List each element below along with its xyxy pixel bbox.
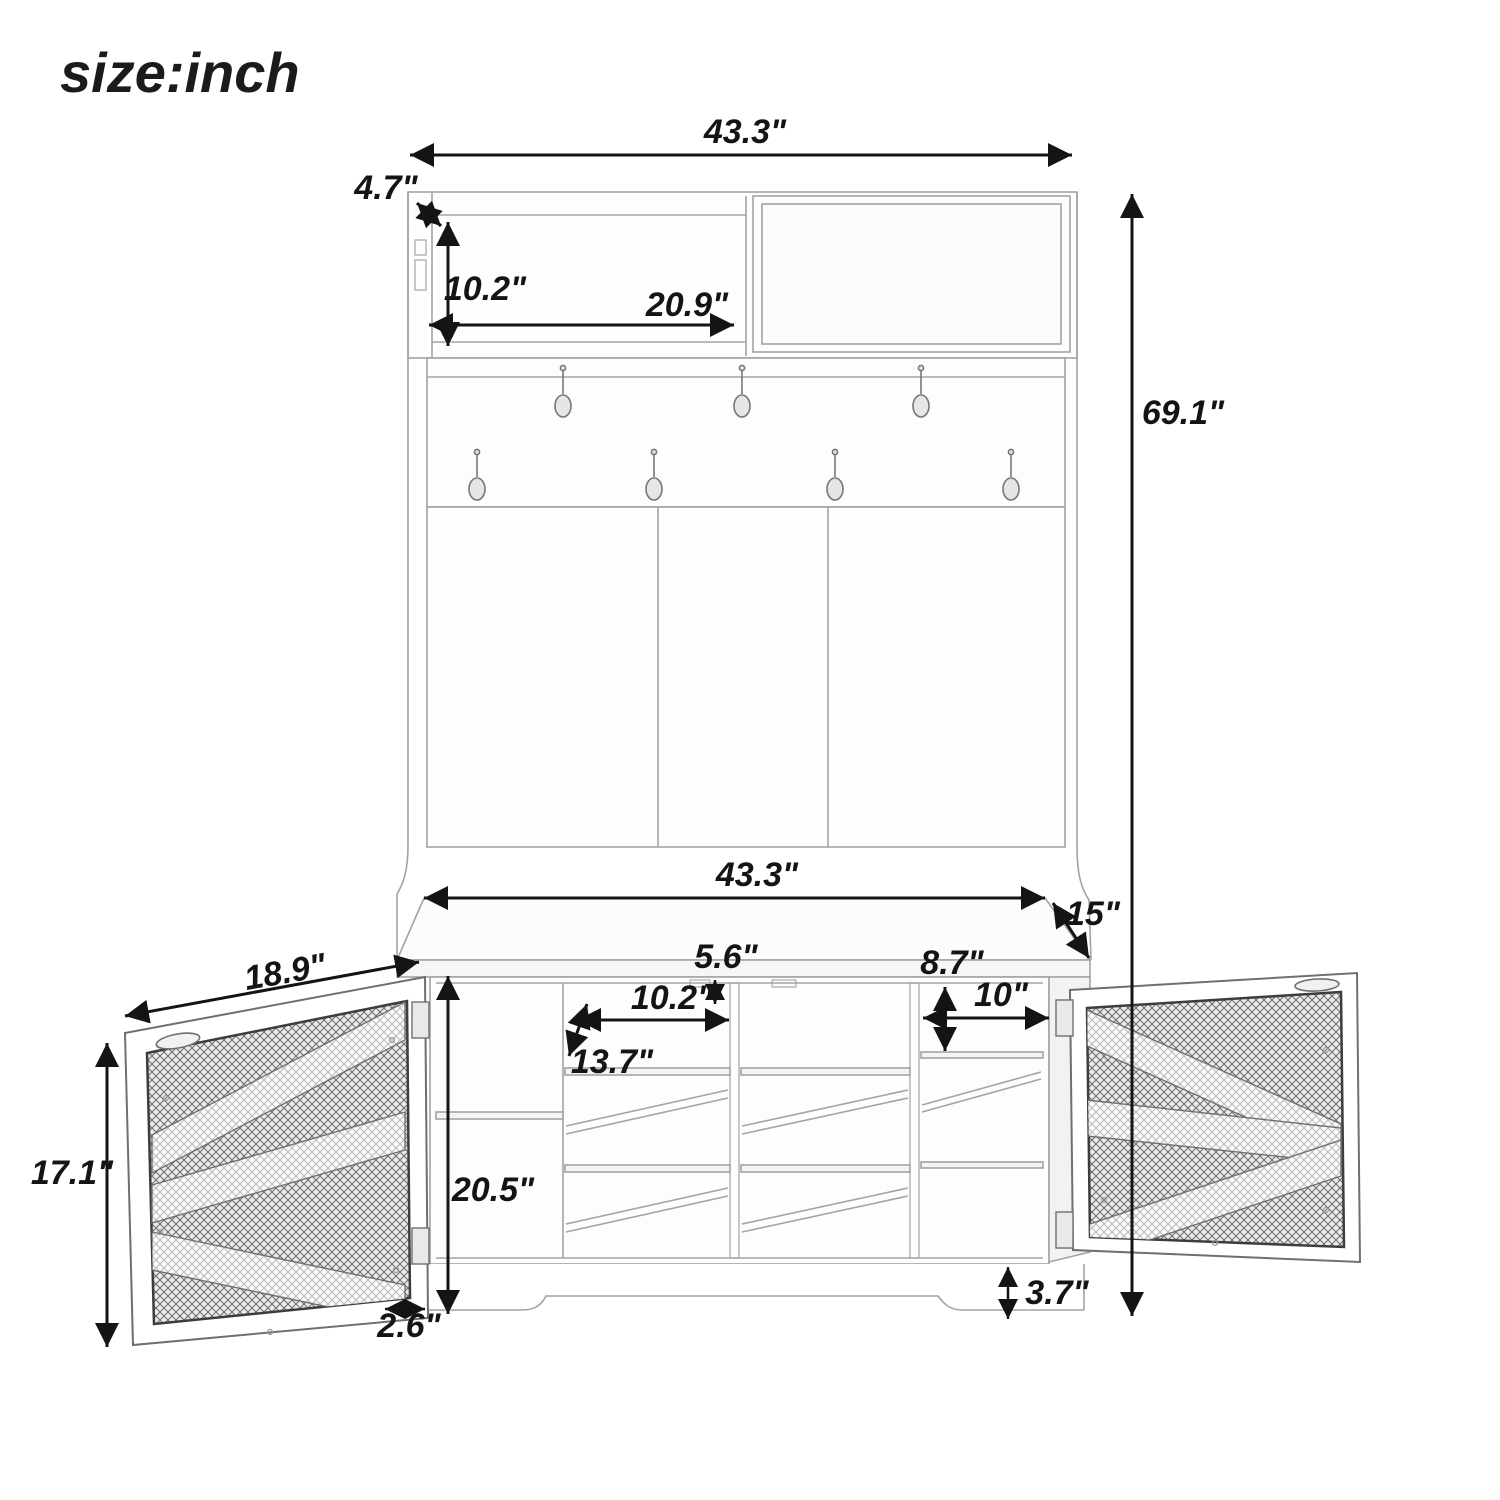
shelf	[565, 1165, 730, 1172]
dim-bench-width-label: 43.3"	[715, 856, 799, 894]
dim-door-height-label: 17.1"	[31, 1154, 114, 1192]
dim-base-height-label: 3.7"	[1025, 1274, 1089, 1312]
shelf	[921, 1162, 1043, 1168]
hook-panel	[427, 358, 1065, 507]
dim-shelf-width-label: 20.9"	[645, 286, 729, 324]
right-side-panel	[1077, 192, 1091, 960]
dim-cubby-depth-label: 13.7"	[571, 1043, 654, 1081]
page-title: size:inch	[60, 41, 300, 104]
size-diagram: size:inch 43.3" 4.7" 10.2" 20.9" 69.1" 4…	[0, 0, 1500, 1500]
shelf	[921, 1052, 1043, 1058]
dim-right-cubby-width-label: 10"	[974, 976, 1029, 1014]
left-door-hinge	[412, 1228, 429, 1264]
left-mesh-door	[125, 977, 429, 1345]
dim-base-inset-label: 2.6"	[376, 1307, 441, 1345]
diagram-svg: size:inch 43.3" 4.7" 10.2" 20.9" 69.1" 4…	[0, 0, 1500, 1500]
dim-door-width-label: 18.9"	[241, 946, 330, 998]
left-door-hinge	[412, 1002, 429, 1038]
right-door-hinge	[1056, 1212, 1073, 1248]
dim-shelf-height-label: 10.2"	[444, 270, 527, 308]
dim-top-width-label: 43.3"	[703, 113, 787, 151]
dim-cubby-width-label: 10.2"	[631, 979, 714, 1017]
dim-total-height-label: 69.1"	[1142, 394, 1225, 432]
dim-top-depth-label: 4.7"	[353, 169, 418, 207]
shelf	[741, 1165, 910, 1172]
dim-bench-height-label: 20.5"	[451, 1171, 535, 1209]
shelf	[741, 1068, 910, 1075]
right-door-hinge	[1056, 1000, 1073, 1036]
shelf	[436, 1112, 563, 1119]
bench-cabinet	[430, 977, 1090, 1264]
dim-gap-height-label: 5.6"	[694, 938, 758, 976]
left-side-panel	[397, 192, 408, 960]
dim-bench-depth-label: 15"	[1066, 895, 1121, 933]
right-mesh-door	[1056, 973, 1360, 1262]
bench-base	[377, 1264, 1084, 1310]
hall-tree-furniture	[125, 192, 1360, 1345]
